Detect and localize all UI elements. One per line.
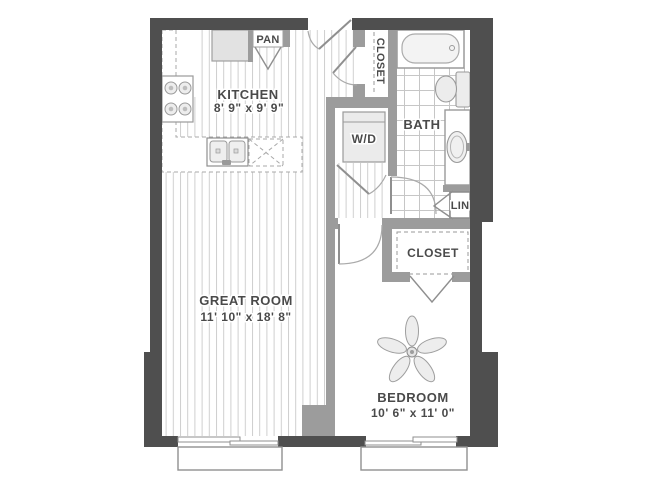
floor-plan-drawing: KITCHEN 8' 9" x 9' 9" PAN CLOSET BATH W/… bbox=[0, 0, 650, 490]
bath-label: BATH bbox=[403, 117, 440, 132]
pantry-label: PAN bbox=[256, 34, 279, 46]
bedroom-label: BEDROOM bbox=[377, 390, 448, 405]
balcony bbox=[178, 447, 467, 470]
linen-label: LIN bbox=[451, 200, 470, 212]
ceiling-fan-icon bbox=[376, 316, 448, 385]
vanity-sink-icon bbox=[445, 110, 470, 185]
kitchen-label: KITCHEN bbox=[217, 87, 278, 102]
bedroom-closet-label: CLOSET bbox=[407, 246, 459, 260]
great-room-label: GREAT ROOM bbox=[199, 293, 293, 308]
entry-closet-label: CLOSET bbox=[374, 38, 386, 84]
stove-icon bbox=[162, 76, 193, 122]
bathtub-icon bbox=[397, 30, 464, 68]
kitchen-dims: 8' 9" x 9' 9" bbox=[214, 101, 284, 115]
washer-dryer-label: W/D bbox=[352, 132, 377, 146]
bedroom-dims: 10' 6" x 11' 0" bbox=[371, 406, 455, 420]
floor-plan-page: KITCHEN 8' 9" x 9' 9" PAN CLOSET BATH W/… bbox=[0, 0, 650, 490]
kitchen-sink-icon bbox=[207, 138, 248, 166]
great-room-dims: 11' 10" x 18' 8" bbox=[200, 310, 291, 324]
refrigerator-icon bbox=[212, 30, 250, 61]
